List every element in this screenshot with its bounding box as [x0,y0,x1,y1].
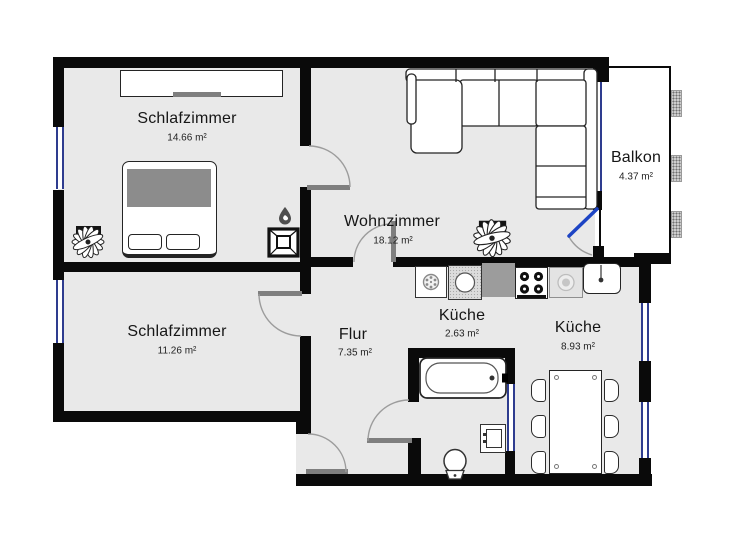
floor-plan: Schlafzimmer 14.66 m² Wohnzimmer 18.12 m… [0,0,739,554]
door-arc [309,146,350,187]
room-label-balkon: Balkon [611,149,661,167]
door-arcs [0,0,739,554]
room-area-schlafzimmer-1: 14.66 m² [167,133,206,144]
room-label-schlafzimmer-1: Schlafzimmer [137,110,236,128]
door-arc [308,434,346,472]
room-area-wohnzimmer: 18.12 m² [373,236,412,247]
room-label-flur: Flur [339,326,367,344]
room-label-wohnzimmer: Wohnzimmer [344,213,440,231]
door-arc [368,400,409,441]
room-label-kueche-2: Küche [555,319,601,337]
room-area-flur: 7.35 m² [338,348,372,359]
door-arc [259,294,301,336]
room-area-kueche-1: 2.63 m² [445,329,479,340]
door-arc [569,237,592,255]
room-area-balkon: 4.37 m² [619,172,653,183]
balcony-door-glass [569,209,597,236]
room-area-kueche-2: 8.93 m² [561,342,595,353]
room-label-kueche-1: Küche [439,307,485,325]
room-label-schlafzimmer-2: Schlafzimmer [127,323,226,341]
room-area-schlafzimmer-2: 11.26 m² [158,346,197,357]
